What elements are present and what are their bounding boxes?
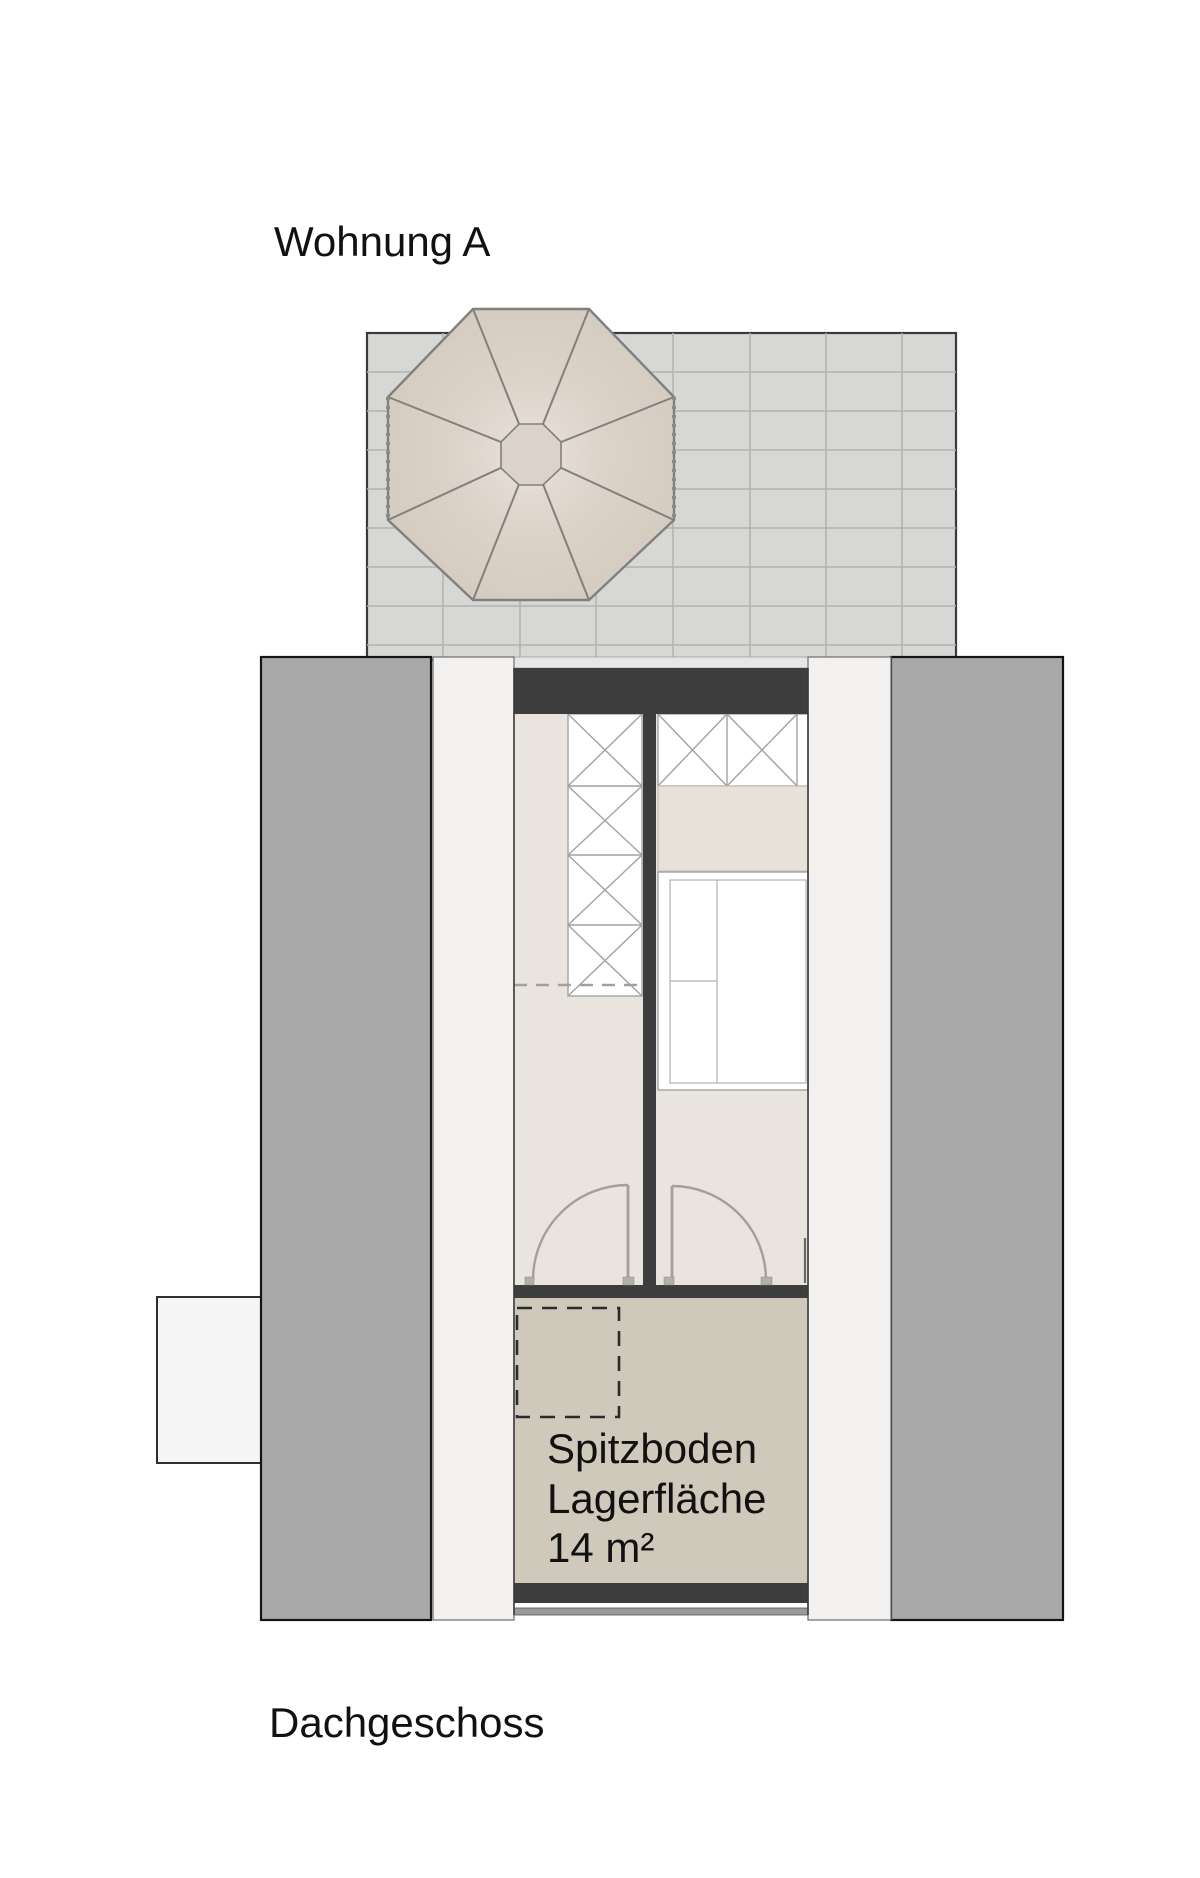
parasol <box>388 309 674 600</box>
roof-slab-right <box>891 657 1063 1620</box>
closet-column <box>568 714 642 996</box>
attic-label-line1: Spitzboden <box>547 1425 757 1472</box>
attic-label-line2: Lagerfläche <box>547 1475 767 1522</box>
bed <box>658 872 808 1090</box>
wall-top <box>514 668 808 714</box>
floor-plan-drawing: Wohnung A Spitzboden Lagerfläche 14 m² D… <box>0 0 1200 1878</box>
bedside-band <box>658 786 808 871</box>
eaves-bottom-line <box>514 1608 808 1615</box>
wardrobe-row <box>658 714 808 786</box>
floor-plan-page: Wohnung A Spitzboden Lagerfläche 14 m² D… <box>0 0 1200 1878</box>
wall-bottom-rooms <box>514 1285 808 1298</box>
wall-bottom-attic <box>514 1583 808 1603</box>
eaves-strip-right <box>808 657 891 1620</box>
wall-center <box>643 714 656 1298</box>
parasol-hub <box>501 424 561 485</box>
left-dormer <box>157 1297 262 1463</box>
eaves-strip-left <box>433 657 514 1620</box>
terrace-edge-strip <box>514 657 808 668</box>
floor-title: Dachgeschoss <box>269 1699 544 1746</box>
roof-slab-left <box>261 657 431 1620</box>
attic-label-line3: 14 m² <box>547 1524 654 1571</box>
apartment-title: Wohnung A <box>274 218 490 265</box>
